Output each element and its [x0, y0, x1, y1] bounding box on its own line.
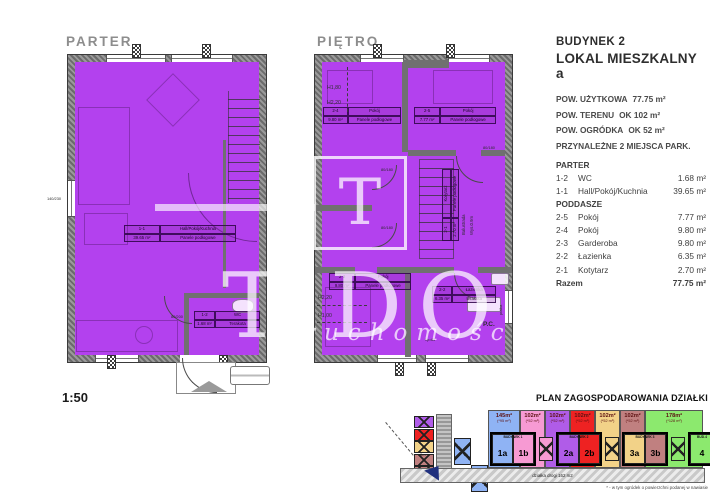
balustrade-label: Balustrada	[461, 173, 466, 235]
stat-line: POW. OGRÓDKAOK 52 m²	[556, 125, 706, 135]
window-dimension: 140/230	[46, 196, 62, 201]
room-name: Pokój	[440, 107, 496, 116]
window	[377, 355, 417, 362]
window	[68, 180, 75, 217]
room-label-2-2: 2-2 Łazienka 6.35 m² terakota	[432, 286, 496, 303]
window	[505, 290, 512, 324]
floorplan-sheet: PARTER 1-1 Hall/Pokój/Kuchnia 39.65 m² P…	[0, 0, 710, 493]
parking-space	[539, 437, 553, 461]
unit-1a: 1a	[492, 434, 513, 464]
building-3: BUDYNEK 3 3a 3b	[622, 432, 668, 466]
stat-line: POW. UŻYTKOWA77.75 m²	[556, 94, 706, 104]
schedule-row: 1-1Hall/Pokój/Kuchnia39.65 m²	[556, 186, 706, 196]
unit-4: 4	[690, 434, 710, 464]
corridor-wall	[481, 150, 505, 156]
unit-3a: 3a	[624, 434, 645, 464]
room-floor: Panele podłogowe	[355, 282, 411, 291]
room-code: 2-5	[414, 107, 440, 116]
schedule-row: 2-5Pokój7.77 m²	[556, 212, 706, 222]
room-area: 7.77 m²	[414, 116, 440, 125]
vent-marker	[202, 44, 211, 58]
schedule-row: 2-3Garderoba9.80 m²	[556, 238, 706, 248]
door-dimension: 80/200	[171, 314, 183, 319]
room-area: 2.70 m²	[451, 218, 460, 241]
room-name: WC	[215, 311, 260, 320]
road-label: działka drogi 162 m2	[532, 473, 573, 478]
parking-space	[671, 437, 685, 461]
height-line-label: H2,20	[327, 100, 341, 106]
schedule-row: 1-2WC1.68 m²	[556, 173, 706, 183]
parking-space	[605, 437, 619, 461]
pietro-plan: 2-4 Pokój 9.80 m² Panele podłogowe 2-5 P…	[315, 55, 512, 362]
schedule-row: 2-2Łazienka6.35 m²	[556, 251, 706, 261]
door-dimension: 80/180	[381, 167, 393, 172]
vent-marker	[427, 362, 436, 376]
parking-space	[454, 438, 471, 465]
parking-space	[414, 429, 434, 441]
schedule-section: PARTER	[556, 160, 706, 170]
height-line-label: H1,80	[327, 85, 341, 91]
room-schedule: PARTER 1-2WC1.68 m² 1-1Hall/Pokój/Kuchni…	[556, 160, 706, 288]
unit-3b: 3b	[645, 434, 666, 464]
wc-wall	[184, 293, 259, 298]
partition-wall	[402, 62, 408, 152]
door-dimension: 80/180	[381, 225, 393, 230]
area-stats: POW. UŻYTKOWA77.75 m² POW. TERENUOK 102 …	[556, 94, 706, 151]
kitchen-counter-outline	[76, 320, 178, 352]
vent-marker	[132, 44, 141, 58]
building-1: BUDYNEK 1 1a 1b	[490, 432, 536, 466]
room-label-hall: 1-1 Hall/Pokój/Kuchnia 39.65 m² Panele p…	[124, 225, 236, 242]
room-label-wc: 1-2 WC 1.68 m² Terakota	[194, 311, 260, 328]
room-code: 2-4	[323, 107, 348, 116]
room-name: Pokój	[348, 107, 401, 116]
schedule-section: PODDASZE	[556, 199, 706, 209]
site-footnote: * - w tym ogródek o powierzchni podanej …	[606, 485, 708, 490]
room-name: Łazienka	[452, 286, 496, 295]
furniture-outline	[433, 70, 493, 104]
road-width-label: 6m	[420, 452, 426, 457]
room-floor: Panele podłogowe	[440, 116, 496, 125]
balustrade-height-label: Wys.0.9m	[469, 179, 474, 235]
drive-strip	[436, 414, 452, 470]
window	[360, 55, 404, 62]
building-4: BUD.4 4	[688, 432, 710, 466]
room-label-2-5: 2-5 Pokój 7.77 m² Panele podłogowe	[414, 107, 496, 124]
schedule-row: 2-1Kotytarz2.70 m²	[556, 265, 706, 275]
site-plan: 6m 145m²(*95 m²) 102m²(*52 m²) 102m²(*52…	[386, 408, 708, 492]
stat-line: PRZYNALEŻNE 2 MIEJSCA PARK.	[556, 141, 706, 151]
room-area: 9.80 m²	[329, 282, 355, 291]
entrance-step-arrow	[191, 381, 227, 392]
room-label-2-4: 2-4 Pokój 9.80 m² Panele podłogowe	[323, 107, 401, 124]
partition-wall	[315, 205, 372, 211]
room-area: 9.80 m²	[323, 116, 348, 125]
vent-marker	[373, 44, 382, 58]
room-label-2-3: 2-3 Pokój 9.80 m² Panele podłogowe	[329, 273, 411, 290]
room-area: 6.35 m²	[432, 295, 452, 304]
building-title: BUDYNEK 2	[556, 36, 706, 48]
room-floor: terakota	[452, 295, 496, 304]
room-floor: Panele podłogowe	[348, 116, 401, 125]
vent-marker	[107, 355, 116, 369]
info-panel: BUDYNEK 2 LOKAL MIESZKALNY a POW. UŻYTKO…	[556, 36, 706, 288]
vent-marker	[446, 44, 455, 58]
room-name: Pokój	[355, 273, 411, 282]
partition-wall	[408, 267, 454, 273]
sink-fixture	[491, 273, 509, 285]
stair-wall	[223, 140, 226, 288]
height-dash-line	[317, 322, 367, 323]
sink-outline	[135, 326, 153, 344]
corridor-wall	[408, 150, 456, 156]
vent-marker	[395, 362, 404, 376]
height-dash-line	[317, 305, 367, 306]
building-2: BUDYNEK 2 2a 2b	[556, 432, 602, 466]
room-code: 2-3	[329, 273, 355, 282]
room-name: Korytarz	[442, 169, 451, 218]
furniture-outline	[84, 213, 128, 245]
parapet-height-label: hp=85	[425, 338, 435, 342]
exterior-unit-outline	[230, 366, 270, 385]
room-code: 1-2	[194, 311, 215, 320]
unit-2b: 2b	[579, 434, 600, 464]
room-code: 2-2	[432, 286, 452, 295]
window	[425, 355, 469, 362]
room-label-2-1-rotated: 2-1 Korytarz 2.70 m² Panele podłogowe	[442, 169, 459, 241]
room-name: Hall/Pokój/Kuchnia	[160, 225, 236, 234]
unit-title: LOKAL MIESZKALNY a	[556, 51, 706, 81]
door-dimension: 80/180	[483, 145, 495, 150]
stat-line: POW. TERENUOK 102 m²	[556, 110, 706, 120]
chimney-block	[403, 60, 449, 68]
room-floor: Panele podłogowe	[160, 234, 236, 243]
washer-label: pralka	[499, 285, 503, 315]
room-area: 39.65 m²	[124, 234, 160, 243]
parter-title: PARTER	[66, 34, 133, 49]
room-code: 1-1	[124, 225, 160, 234]
height-line-label: H1,00	[318, 313, 332, 319]
schedule-total: Razem77.75 m²	[556, 278, 706, 288]
road-strip: działka drogi 162 m2	[400, 468, 705, 483]
unit-2a: 2a	[558, 434, 579, 464]
boiler-label: P.C.	[483, 321, 495, 328]
room-floor: Terakota	[215, 320, 260, 329]
scale-label: 1:50	[62, 390, 88, 405]
building-row: BUDYNEK 1 1a 1b BUDYNEK 2 2a 2b BUDYNEK …	[490, 432, 710, 466]
room-code: 2-1	[442, 218, 451, 241]
schedule-row: 2-4Pokój9.80 m²	[556, 225, 706, 235]
room-area: 1.68 m²	[194, 320, 215, 329]
parter-plan: 1-1 Hall/Pokój/Kuchnia 39.65 m² Panele p…	[68, 55, 266, 362]
site-plan-title: PLAN ZAGOSPODAROWANIA DZIAŁKI	[528, 393, 708, 403]
window	[95, 355, 139, 362]
pietro-title: PIĘTRO	[317, 34, 379, 49]
parking-space	[414, 416, 434, 428]
room-floor: Panele podłogowe	[451, 169, 460, 218]
height-dash-line	[347, 67, 348, 112]
unit-1b: 1b	[513, 434, 534, 464]
furniture-outline	[78, 107, 130, 205]
height-line-label: H2,20	[318, 295, 332, 301]
furniture-outline	[146, 73, 200, 127]
